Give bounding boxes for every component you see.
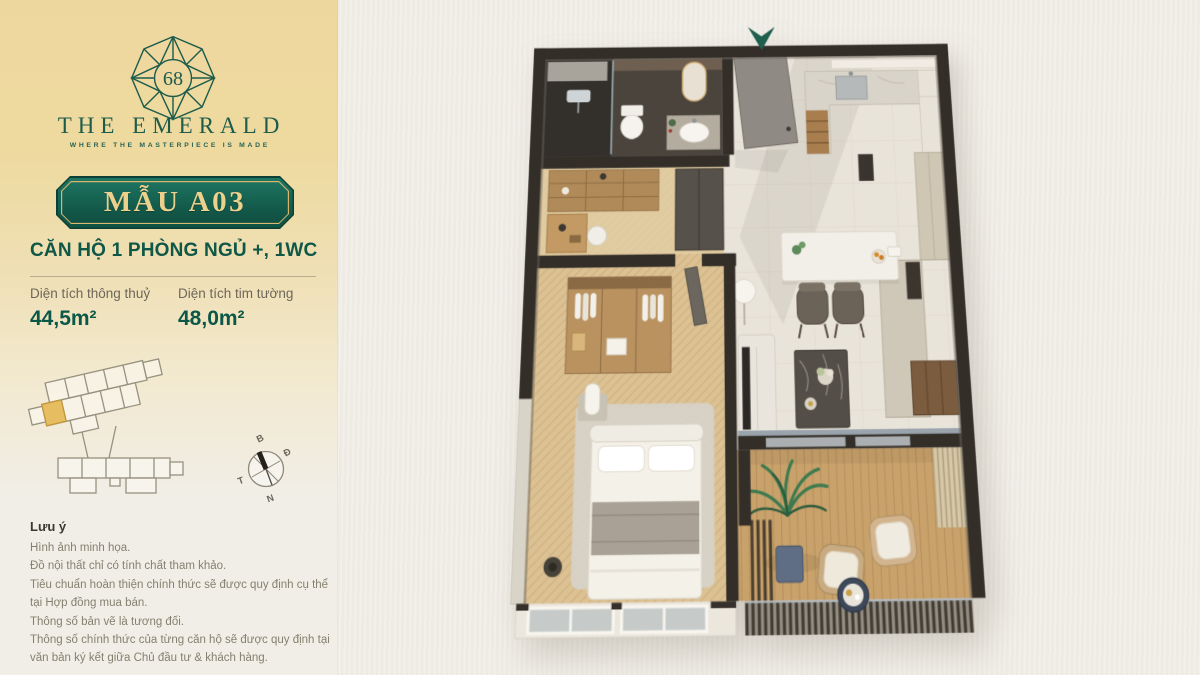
bathroom-mirror bbox=[682, 62, 706, 101]
site-plan-minimap bbox=[22, 352, 207, 507]
brand-name: THE EMERALD bbox=[0, 113, 337, 139]
area-stats: Diện tích thông thuỷ 44,5m² Diện tích ti… bbox=[30, 286, 338, 331]
brand-tagline: WHERE THE MASTERPIECE IS MADE bbox=[0, 142, 337, 149]
bedroom-closet bbox=[565, 276, 671, 373]
toilet bbox=[621, 105, 643, 116]
unit-title: CĂN HỘ 1 PHÒNG NGỦ +, 1WC bbox=[30, 240, 330, 262]
bathroom-sink bbox=[680, 122, 710, 142]
shower-head bbox=[567, 90, 591, 103]
divider bbox=[30, 276, 316, 277]
pillow bbox=[598, 446, 644, 472]
compass-south-label: N bbox=[265, 493, 275, 506]
note-line: Thông số chính thức của từng căn hộ sẽ đ… bbox=[30, 631, 334, 668]
tv-bench bbox=[738, 335, 777, 445]
floor-vase bbox=[585, 384, 601, 415]
floorplan-render bbox=[478, 8, 1010, 620]
badge-inner-field: MẪU A03 bbox=[62, 182, 288, 223]
dining-table bbox=[794, 350, 849, 428]
note-line: Thông số bản vẽ là tương đối. bbox=[30, 613, 334, 631]
pillow bbox=[648, 445, 694, 471]
note-line: Đồ nội thất chỉ có tính chất tham khảo. bbox=[30, 557, 334, 575]
note-line: Hình ảnh minh họa. bbox=[30, 539, 334, 557]
plant-pot bbox=[776, 546, 803, 582]
notes-title: Lưu ý bbox=[30, 519, 334, 534]
wine-rack bbox=[858, 154, 874, 181]
wicker-chair bbox=[868, 514, 919, 568]
area-net: Diện tích thông thuỷ 44,5m² bbox=[30, 286, 178, 331]
desk-chair bbox=[587, 226, 606, 245]
logo-number: 68 bbox=[163, 68, 183, 90]
area-gross-value: 48,0m² bbox=[178, 307, 338, 331]
note-line: Tiêu chuẩn hoàn thiện chính thức sẽ được… bbox=[30, 576, 334, 613]
brand-diamond-icon: 68 bbox=[129, 34, 217, 122]
wardrobe-cabinet bbox=[675, 169, 723, 251]
area-gross-label: Diện tích tim tường bbox=[178, 286, 338, 301]
bed-throw bbox=[591, 501, 699, 555]
vanity-desk bbox=[546, 214, 587, 253]
area-gross: Diện tích tim tường 48,0m² bbox=[178, 286, 338, 331]
highlighted-unit bbox=[42, 400, 66, 426]
kitchen-island bbox=[781, 231, 903, 285]
bed bbox=[586, 424, 704, 600]
area-net-label: Diện tích thông thuỷ bbox=[30, 286, 178, 301]
kitchen-sink bbox=[836, 76, 868, 99]
compass-rose: B Đ N T bbox=[233, 426, 299, 508]
unit-model-badge: MẪU A03 bbox=[56, 176, 294, 229]
headboard bbox=[590, 424, 703, 442]
tv-console bbox=[911, 361, 959, 415]
area-net-value: 44,5m² bbox=[30, 307, 178, 331]
compass-north-label: B bbox=[255, 432, 266, 445]
compass-east-label: Đ bbox=[282, 446, 293, 459]
drum-floor-lamp bbox=[732, 279, 755, 303]
badge-label: MẪU A03 bbox=[104, 186, 246, 219]
page: 68 THE EMERALD WHERE THE MASTERPIECE IS … bbox=[0, 0, 1200, 675]
bedroom-exterior-windows bbox=[515, 599, 736, 639]
tv-screen bbox=[742, 347, 751, 430]
disclaimer-notes: Lưu ý Hình ảnh minh họa. Đồ nội thất chỉ… bbox=[30, 519, 334, 668]
info-panel: 68 THE EMERALD WHERE THE MASTERPIECE IS … bbox=[0, 0, 338, 675]
floorplan-svg bbox=[457, 18, 1040, 665]
compass-west-label: T bbox=[236, 475, 245, 487]
slat-screen bbox=[750, 520, 774, 601]
